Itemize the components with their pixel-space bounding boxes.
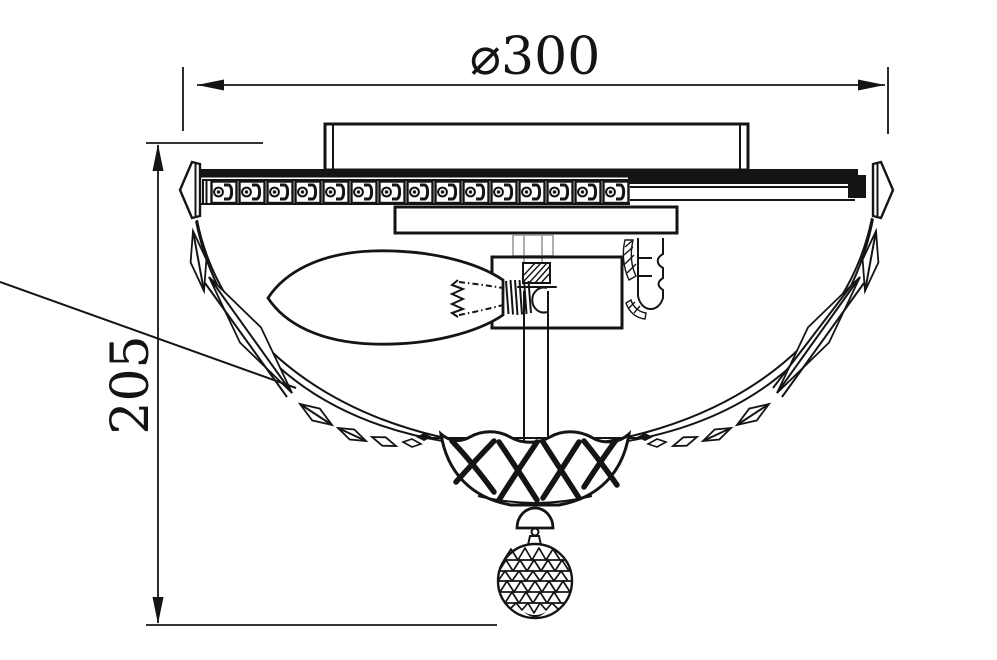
finial-knob: [532, 529, 539, 536]
candle-bulb: [268, 251, 547, 344]
terminal-screw: [518, 263, 556, 287]
bulb-envelope: [268, 251, 503, 344]
band-ornament-cells: [212, 182, 629, 204]
ceiling-mount-box: [325, 124, 748, 170]
dome-finial: [517, 508, 553, 528]
decorative-band: [200, 169, 866, 204]
socket-contact-hook: [532, 288, 547, 313]
left-end-crystal: [180, 162, 200, 218]
center-rod: [524, 291, 548, 443]
crystal-body: [873, 162, 893, 218]
band-top-bar-step: [628, 175, 858, 184]
arrowhead-left: [197, 80, 224, 91]
crystal-swag-right: [637, 231, 878, 447]
right-end-crystal: [873, 162, 893, 218]
arrowhead-bottom: [153, 597, 164, 624]
drawing-canvas: ⌀300 205: [0, 0, 997, 660]
arrowhead-right: [858, 80, 885, 91]
bottom-ornament: [441, 432, 629, 618]
mounting-bolt: [513, 235, 553, 264]
dimension-diameter: ⌀300: [183, 27, 888, 134]
clip-column: [638, 238, 663, 309]
diameter-dimension-label: ⌀300: [470, 27, 601, 87]
arrowhead-top: [153, 144, 164, 171]
glass-bowl-outline: [197, 218, 872, 449]
crystal-body: [180, 162, 200, 218]
canopy-outline: [325, 124, 748, 170]
bulb-screw-base: [506, 280, 531, 315]
mounting-plate: [395, 207, 677, 233]
side-clip: [623, 238, 663, 319]
height-dimension-label: 205: [101, 335, 161, 434]
technical-drawing: ⌀300 205: [0, 0, 997, 660]
crystal-ball: [498, 544, 572, 618]
